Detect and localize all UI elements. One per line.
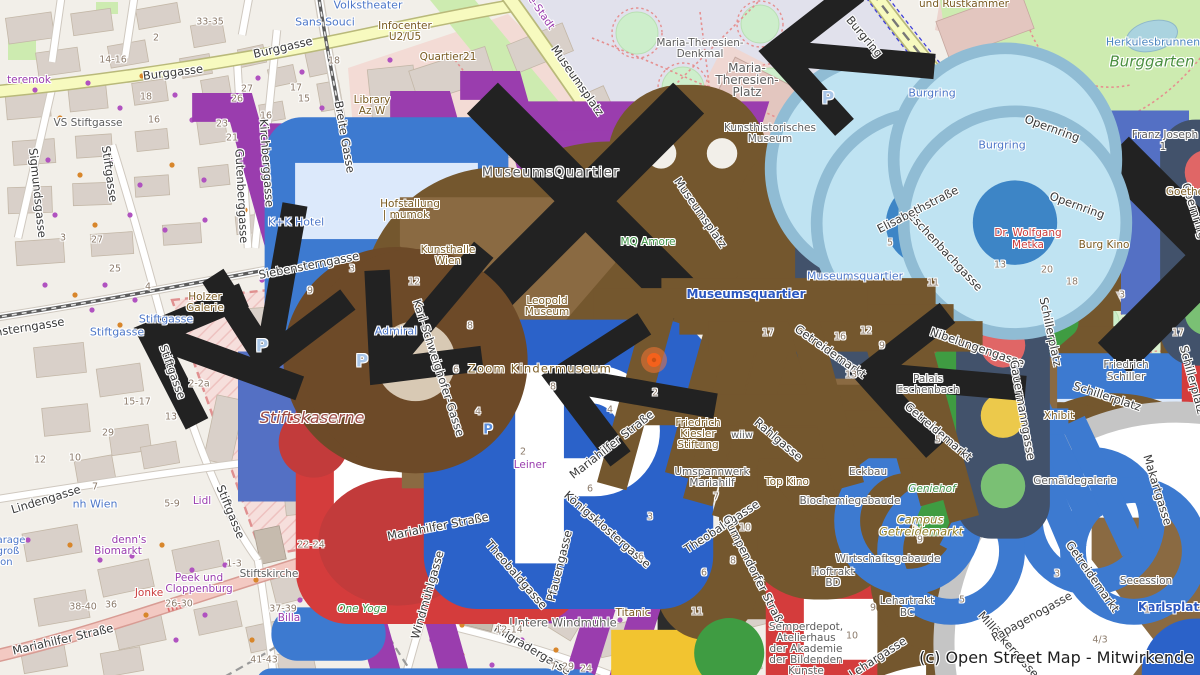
poi-dot [25, 537, 30, 542]
poi-dot [67, 542, 72, 547]
poi-dot [32, 87, 37, 92]
poi-dot [169, 162, 174, 167]
poi-dot [162, 227, 167, 232]
poi-dot [45, 157, 50, 162]
poi-dot [222, 562, 227, 567]
poi-dot [319, 105, 324, 110]
poi-dot [489, 662, 494, 667]
poi-dot [189, 567, 194, 572]
map-attribution: (c) Open Street Map - Mitwirkende [919, 648, 1194, 667]
poi-dot [92, 222, 97, 227]
poi-dot [159, 542, 164, 547]
poi-dot [52, 212, 57, 217]
fountain-icon [904, 111, 1127, 334]
poi-dot [132, 297, 137, 302]
poi-dot [173, 637, 178, 642]
poi-dot [299, 69, 304, 74]
poi-dot [72, 292, 77, 297]
poi-dot [201, 177, 206, 182]
poi-dot [297, 597, 302, 602]
poi-dot [553, 647, 558, 652]
poi-dot [129, 553, 134, 558]
poi-dot [57, 115, 62, 120]
poi-dot [259, 277, 264, 282]
poi-dot [102, 282, 107, 287]
poi-dot [85, 80, 90, 85]
poi-dot [172, 92, 177, 97]
poi-dot [77, 172, 82, 177]
poi-dot [137, 182, 142, 187]
poi-dot [202, 217, 207, 222]
poi-dot [117, 322, 122, 327]
bus-icon [369, 669, 613, 675]
poi-dot [42, 282, 47, 287]
poi-dot [242, 207, 247, 212]
poi-dot [127, 212, 132, 217]
poi-dot [255, 75, 260, 80]
poi-dot [519, 637, 524, 642]
map-marker[interactable] [641, 347, 667, 373]
poi-dot [253, 577, 258, 582]
poi-dot [202, 612, 207, 617]
poi-dot [143, 612, 148, 617]
poi-dot [139, 73, 144, 78]
map-canvas[interactable]: BurggasseBurggasseMuseumsplatzMuseumspla… [0, 0, 1200, 675]
poi-dot [89, 307, 94, 312]
poi-dot [97, 557, 102, 562]
poi-dot [117, 105, 122, 110]
map-base-graphics [0, 0, 1200, 675]
poi-dot [107, 157, 112, 162]
poi-dot [249, 637, 254, 642]
poi-dot [617, 617, 622, 622]
poi-dot [387, 57, 392, 62]
